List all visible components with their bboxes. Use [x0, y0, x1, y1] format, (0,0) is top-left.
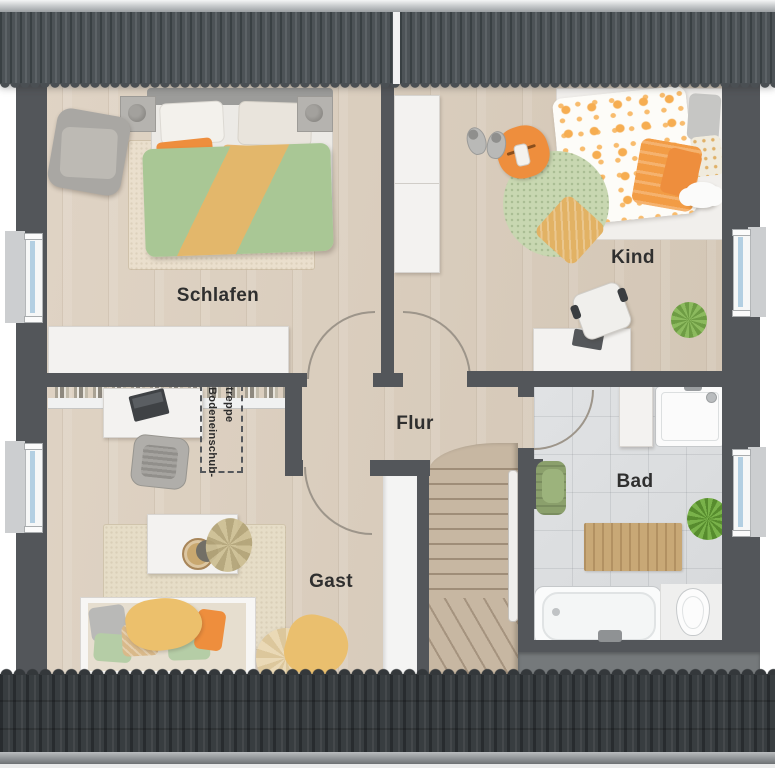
- roof-drip-edge: [0, 763, 775, 768]
- roof-top: [0, 12, 775, 84]
- wall-schlafen-kind: [381, 84, 394, 387]
- bathroom-cabinet: [619, 385, 653, 447]
- roof-gutter: [0, 752, 775, 763]
- window-cap: [24, 443, 43, 450]
- nightstand-right: [297, 96, 333, 132]
- roof-bottom: [0, 674, 775, 752]
- wall-gast-north: [285, 460, 303, 476]
- wall-stub: [373, 373, 403, 387]
- green-duvet: [142, 143, 334, 257]
- chimney-block: [383, 474, 417, 675]
- roof-ridge: [0, 0, 775, 12]
- wall-stairs-west: [417, 474, 429, 675]
- wall-kind-south: [467, 371, 724, 387]
- potted-plant: [671, 302, 707, 338]
- roof-bottom-edge: [0, 665, 775, 675]
- room-label-flur: Flur: [380, 413, 450, 435]
- attic-hatch-label: Bodeneinschub- treppe: [203, 387, 243, 471]
- room-label-bad: Bad: [600, 471, 670, 493]
- room-label-kind: Kind: [598, 247, 668, 269]
- wall-schlafen-south: [16, 373, 307, 387]
- tub-drain: [552, 608, 560, 616]
- window-cap: [24, 526, 43, 533]
- window-glass: [738, 237, 743, 307]
- window-cap: [732, 530, 751, 537]
- room-label-gast: Gast: [296, 571, 366, 593]
- stair-winders: [429, 598, 518, 675]
- window-glass: [30, 241, 35, 313]
- sideboard: [48, 326, 289, 375]
- attic-hatch-line1: Bodeneinschub-: [206, 387, 218, 477]
- wooden-bath-mat: [584, 523, 682, 571]
- shower-drain: [706, 392, 717, 403]
- roof-top-edge: [0, 83, 775, 93]
- roof-seam: [393, 12, 400, 84]
- window-glass: [738, 457, 743, 527]
- green-towels: [536, 461, 566, 515]
- window-cap: [24, 316, 43, 323]
- floor-plan: Bodeneinschub- treppe Schlafen Kind Flur…: [0, 0, 775, 768]
- gray-pillow: [686, 93, 721, 141]
- window-cap: [732, 310, 751, 317]
- cloud-side-table: [685, 182, 719, 208]
- armchair: [46, 106, 133, 198]
- wall-flur-gast: [285, 384, 302, 468]
- window-reveal: [5, 441, 25, 533]
- wall-right: [722, 84, 760, 679]
- stair-handrail: [508, 470, 518, 622]
- wall-bad-west: [518, 385, 534, 397]
- room-label-schlafen: Schlafen: [148, 285, 288, 307]
- window-cap: [732, 449, 751, 456]
- window-reveal: [5, 231, 25, 323]
- guest-desk-chair: [129, 433, 190, 491]
- attic-hatch-line2: treppe: [223, 387, 235, 422]
- window-cap: [732, 229, 751, 236]
- wardrobe: [394, 95, 440, 273]
- wall-bad-south: [518, 640, 760, 652]
- window-glass: [30, 451, 35, 523]
- stair-treads: [429, 468, 518, 600]
- tub-faucet: [598, 630, 622, 642]
- window-cap: [24, 233, 43, 240]
